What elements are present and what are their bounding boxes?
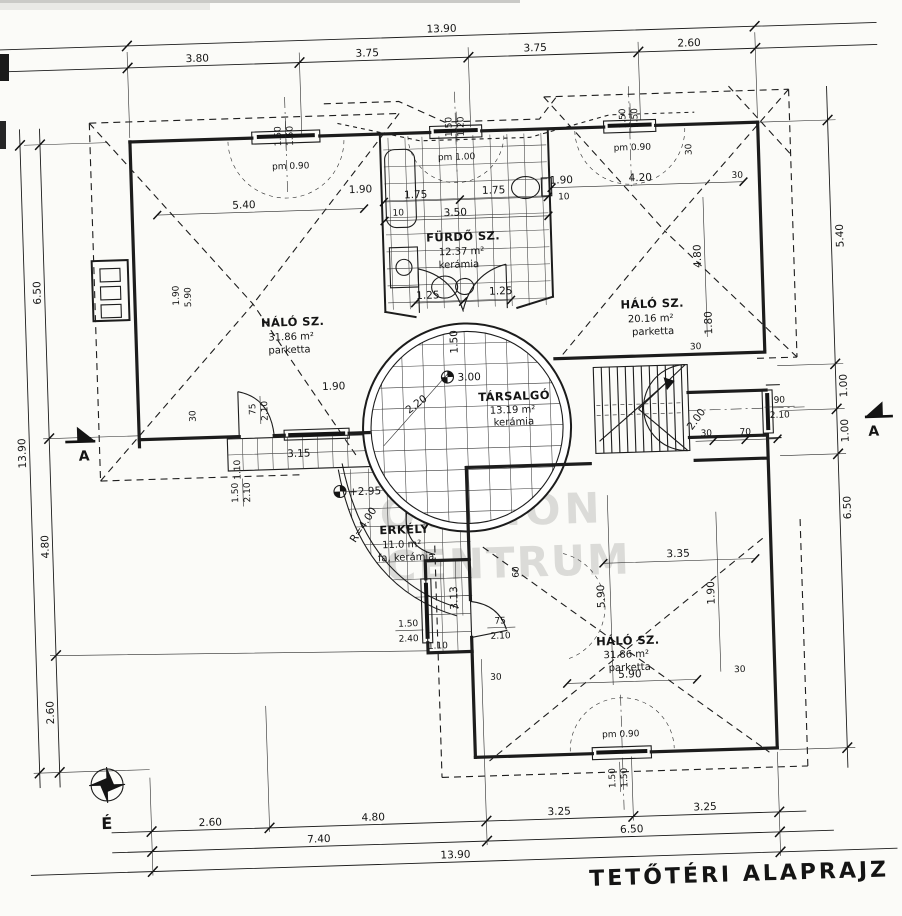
tag: 2.10 [260,400,271,421]
tag: 1.50 [618,108,629,129]
dim-top-overall: 13.90 [426,23,456,36]
dim: 1.10 [428,641,449,652]
chimney [92,260,130,321]
level-value-balcony: +2.95 [349,485,382,498]
dim: 3.13 [448,586,461,610]
dim: 1.00 [839,419,852,443]
section-label-right: A [868,424,879,440]
room-floor: kerámia [439,258,480,271]
dim: 1.90 [705,581,718,605]
dim: 3.25 [693,801,717,814]
tag: 2.10 [243,482,254,503]
section-marker-left: A [65,426,96,465]
room-floor: parketta [608,662,650,674]
room-label-bedroom-ne: HÁLÓ SZ. 20.16 m² parketta [620,295,685,339]
dim: 10 [392,208,404,218]
staircase [593,365,690,454]
dim: 3.15 [287,447,311,460]
radius-label: R=4.00 [348,505,380,545]
room-label-bedroom-nw: HÁLÓ SZ. 31.86 m² parketta [261,313,326,357]
dim: 4.20 [628,172,652,185]
tag: 1.50 [608,768,619,789]
room-floor: parketta [268,344,310,356]
floor-plan-svg: OC OTTHON CENTRUM [0,0,902,916]
window-s [592,746,651,760]
dim: 1.00 [838,374,851,398]
dim: 30 [188,410,198,422]
tag: 1.50 [444,116,455,137]
tag: 75 [248,403,258,415]
tag: 1.50 [231,482,242,503]
room-name: TÁRSALGÓ [478,387,550,404]
window-terrace [284,428,349,440]
room-label-bathroom: FÜRDŐ SZ. 12.37 m² kerámia [426,227,501,271]
dim: 5.90 [595,584,608,608]
drawing-title: TETŐTÉRI ALAPRAJZ [589,856,890,891]
dim: 5.40 [834,224,847,248]
dim: 7.40 [307,833,331,846]
dim: 2.60 [677,37,701,50]
dim: 30 [731,171,743,181]
dim: 1.10 [233,459,244,480]
dim: 30 [690,342,702,352]
room-floor: fa, kerámia [378,551,435,565]
tag: 1.50 [620,767,631,788]
dim: 1.25 [489,285,513,298]
room-area: 20.16 m² [628,313,674,325]
room-floor: kerámia [493,415,534,428]
dim: 10 [558,192,570,202]
room-area: 13.19 m² [490,404,536,416]
tag: 1.50 [398,619,419,630]
dim: 4.80 [39,535,52,559]
dim: 1.50 [448,330,461,354]
dim: 70 [739,428,751,438]
dim: 3.75 [355,47,379,60]
dim: 2.60 [198,816,222,829]
sink [389,247,418,288]
room-name: HÁLÓ SZ. [261,313,325,330]
dim: 60 [511,566,521,578]
room-area: 31.86 m² [268,331,314,343]
dim-left-overall: 13.90 [16,438,29,468]
tag: 1.20 [456,116,467,137]
dim: 4.80 [691,244,704,268]
level-value-lounge: 3.00 [457,371,481,384]
room-name: HÁLÓ SZ. [620,295,684,312]
room-area: 11.0 m² [382,539,422,551]
tag: 1.50 [630,108,641,129]
dim: 1.90 [322,380,346,393]
dim: 6.50 [841,496,854,520]
tag: 2.10 [770,410,791,421]
dim: 3.35 [666,548,690,561]
section-marker-right: A [864,401,893,440]
room-name: FÜRDŐ SZ. [426,227,500,244]
tag: pm 0.90 [272,161,310,172]
dim: 2.60 [44,701,57,725]
dim: 1.75 [404,189,428,202]
tag: 1.50 [273,126,284,147]
dim: 3.75 [523,42,547,55]
dim: 30 [490,673,502,683]
room-label-bedroom-s: HÁLÓ SZ. 31.86 m² parketta [596,632,661,675]
section-label-left: A [79,448,90,464]
dim-bottom-overall: 13.90 [440,849,470,862]
bath-fixtures [384,145,555,300]
tag: 2.40 [399,634,420,645]
room-floor: parketta [632,326,674,338]
dim: 1.25 [416,289,440,302]
dim: 3.50 [443,206,467,219]
room-name: ERKÉLY [379,521,429,538]
dim: 1.90 [549,174,573,187]
dim: 30 [700,429,712,439]
dim: 5.40 [232,199,256,212]
dim: 3.80 [185,52,209,65]
tag: 75 [494,616,506,626]
dim: 3.25 [547,805,571,818]
tag: 1.50 [285,125,296,146]
north-label: É [101,814,113,833]
dim: 6.50 [620,823,644,836]
dim: 1.90 [349,183,373,196]
compass: É [89,766,127,833]
dim: 1.90 [171,285,182,306]
dim: 5.90 [183,287,194,308]
dim: 30 [734,665,746,675]
tag: pm 0.90 [602,729,640,740]
room-area: 31.86 m² [603,649,649,661]
room-area: 12.37 m² [439,246,485,258]
tag: pm 0.90 [614,143,652,154]
dim: 1.80 [703,311,716,335]
tag: 90 [773,395,785,405]
dim: 30 [684,143,694,155]
dim: 6.50 [31,281,44,305]
dim: 1.75 [482,184,506,197]
scanned-floor-plan-page: OC OTTHON CENTRUM [0,0,902,916]
tag: 2.10 [490,631,511,642]
dim: 4.80 [361,811,385,824]
room-name: HÁLÓ SZ. [596,632,660,649]
tag: pm 1.00 [438,152,476,163]
